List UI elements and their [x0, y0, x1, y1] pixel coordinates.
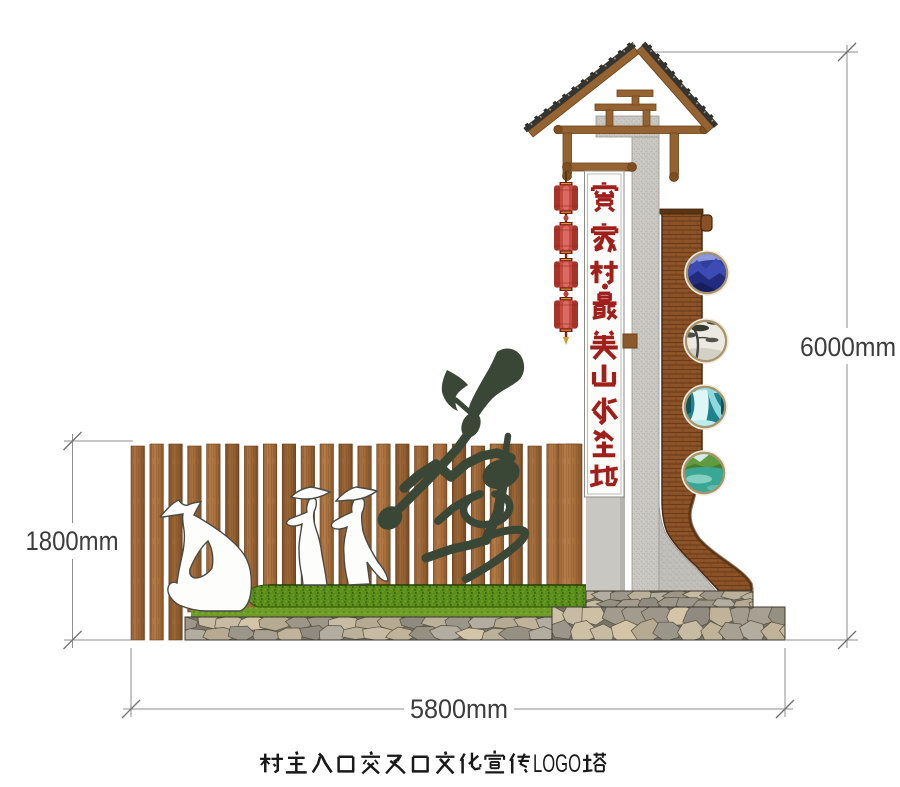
svg-text:1800mm: 1800mm: [26, 526, 119, 556]
svg-text:5800mm: 5800mm: [410, 694, 508, 724]
svg-text:6000mm: 6000mm: [800, 332, 896, 362]
svg-text:LOGO: LOGO: [533, 750, 581, 778]
